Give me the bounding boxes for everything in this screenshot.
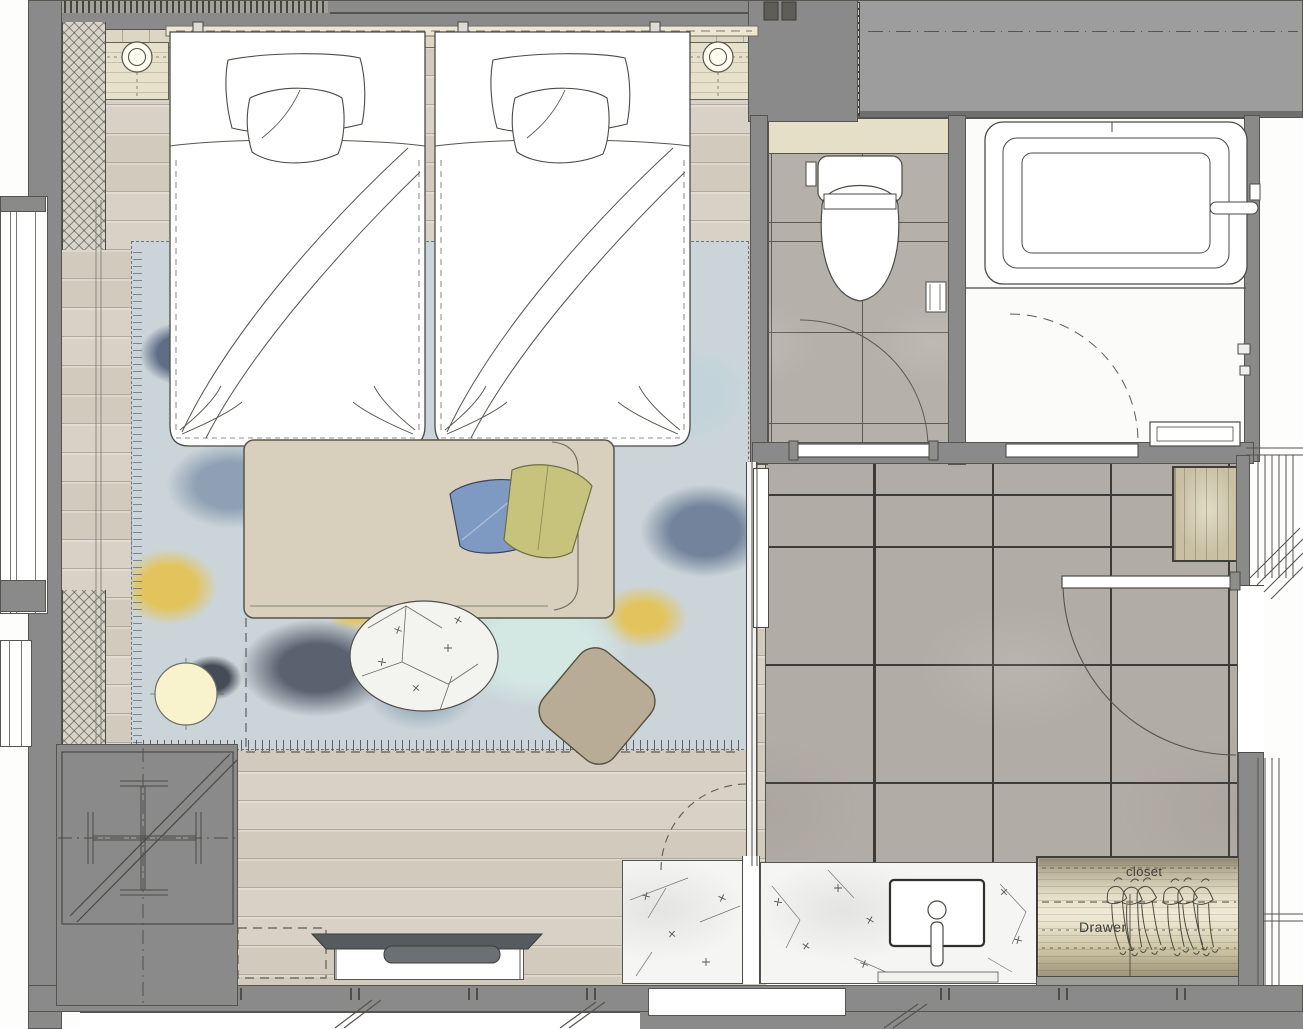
adjacent-block: [855, 0, 1303, 118]
bath-right-wall: [1244, 115, 1260, 462]
insulation-lower: [62, 590, 106, 760]
window-left: [0, 196, 48, 614]
tv-console: [334, 948, 524, 980]
wall-below-wetrooms: [752, 442, 1254, 464]
top-wall-hatch: [28, 1, 328, 13]
nightstand-right: [688, 42, 750, 100]
hall-right-wall-lower: [1238, 752, 1264, 992]
closet-label: closet: [1126, 864, 1162, 879]
insulation-upper: [62, 22, 106, 250]
toilet-block-top-wall: [748, 0, 858, 122]
adjacent-block-centerline: [868, 31, 1298, 32]
bottom-exterior: [80, 1012, 640, 1029]
drawer-label: Drawer: [1079, 919, 1127, 935]
window-left-head: [0, 196, 46, 212]
window-bottom: [648, 988, 846, 1016]
vanity-counter-sink: [760, 862, 1038, 984]
sliding-door-leaf: [753, 468, 769, 628]
window-left-lower: [0, 640, 32, 747]
rug-fringe-left: [133, 248, 142, 743]
bathroom-floor: [964, 118, 1246, 444]
nightstand-left: [105, 42, 169, 100]
hall-right-wall-upper: [1236, 455, 1250, 587]
toilet-left-wall: [750, 115, 768, 465]
toilet-room-floor: [768, 152, 950, 444]
vanity-counter-left: [622, 860, 744, 984]
vanity-partition-stub: [742, 856, 760, 984]
entry-doorway-gap: [1238, 585, 1264, 753]
area-rug: [131, 241, 749, 750]
toilet-bath-wall: [948, 115, 966, 465]
window-left-sill: [0, 580, 46, 612]
column-bay: [56, 744, 238, 1006]
entry-cabinet: [1172, 466, 1242, 562]
toilet-shelf: [768, 118, 950, 154]
floor-plan: closet Drawer: [0, 0, 1303, 1029]
hall-tile-floor: [765, 462, 1238, 868]
